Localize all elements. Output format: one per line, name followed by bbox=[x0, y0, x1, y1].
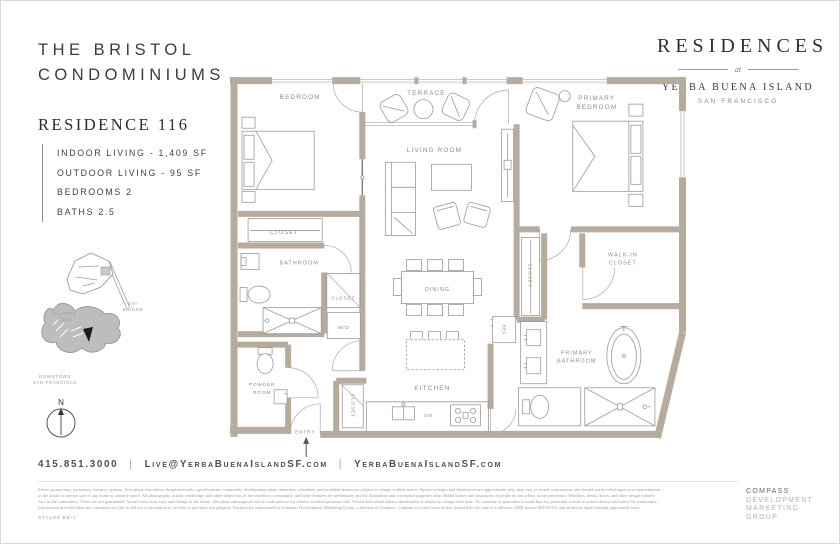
bristol-site-marker bbox=[101, 267, 110, 275]
location-map: BAY BRIDGE CLIPPER COVE DOWNTOWN SAN FRA… bbox=[23, 247, 198, 452]
entry-closet-label: CLOSET bbox=[349, 394, 355, 418]
legal-line-4: Information provided does not constitute… bbox=[38, 505, 746, 511]
refrigerator-label: REF bbox=[502, 324, 507, 334]
map-label-clipper: CLIPPER bbox=[53, 311, 76, 316]
compass-line-4: GROUP bbox=[746, 514, 813, 523]
contact-bar: 415.851.3000 | Live@YerbaBuenaIslandSF.c… bbox=[38, 459, 502, 470]
pocket-door-pull bbox=[361, 176, 364, 179]
legal-disclaimer: Prices, promotions, incentives, features… bbox=[38, 487, 746, 511]
primary-closet-label: CLOSET bbox=[527, 264, 533, 288]
bedroom-closet-label: CLOSET bbox=[270, 230, 298, 236]
primary-bath-label-2: BATHROOM bbox=[557, 359, 596, 365]
residence-name: RESIDENCE 116 bbox=[38, 115, 190, 135]
room-bedroom-closet: CLOSET bbox=[248, 218, 322, 241]
contact-separator-1: | bbox=[129, 459, 133, 470]
room-powder: POWDER ROOM bbox=[249, 348, 287, 404]
map-label-downtown: DOWNTOWN bbox=[39, 374, 71, 379]
map-label-bay: BAY bbox=[128, 301, 138, 306]
map-label-bridge: BRIDGE bbox=[123, 307, 144, 312]
floor-plan: BEDROOM CLOSET BATHROOM CLOSET bbox=[226, 67, 689, 460]
entry-area: ENTRY CLOSET bbox=[295, 385, 363, 457]
bathroom-label: BATHROOM bbox=[279, 261, 318, 267]
map-label-cove: COVE bbox=[58, 317, 73, 322]
contact-separator-2: | bbox=[339, 459, 343, 470]
badge-at: at bbox=[735, 65, 741, 74]
room-walk-in-closet: WALK-IN CLOSET bbox=[608, 252, 638, 266]
room-bathroom: BATHROOM bbox=[240, 253, 321, 333]
contact-phone: 415.851.3000 bbox=[38, 459, 118, 470]
compass-line-1: COMPASS bbox=[746, 488, 813, 497]
style-number: STYLE# BB-1 bbox=[38, 515, 77, 520]
spec-bedrooms: BEDROOMS 2 bbox=[57, 183, 208, 203]
brand-title: THE BRISTOL CONDOMINIUMS bbox=[38, 38, 225, 88]
north-label: N bbox=[58, 398, 64, 407]
bedroom-label: BEDROOM bbox=[280, 94, 321, 101]
spec-baths: BATHS 2.5 bbox=[57, 203, 208, 223]
map-label-sf: SAN FRANCISCO bbox=[33, 380, 77, 385]
walk-in-label-2: CLOSET bbox=[609, 261, 637, 267]
compass-line-3: MARKETING bbox=[746, 505, 813, 514]
entry-arrow-icon bbox=[303, 437, 309, 457]
contact-email: Live@YerbaBuenaIslandSF.com bbox=[145, 459, 328, 470]
room-bedroom: BEDROOM bbox=[242, 94, 321, 202]
kitchen-label: KITCHEN bbox=[414, 385, 450, 392]
dishwasher-label: DW bbox=[424, 413, 433, 418]
brand-title-line1: THE BRISTOL bbox=[38, 38, 225, 63]
washer-dryer-label: W/D bbox=[338, 325, 350, 331]
footer-divider bbox=[38, 481, 738, 482]
contact-website: YerbaBuenaIslandSF.com bbox=[354, 459, 502, 470]
compass-brand-block: COMPASS DEVELOPMENT MARKETING GROUP bbox=[746, 488, 813, 522]
residence-specs: INDOOR LIVING - 1,409 SF OUTDOOR LIVING … bbox=[42, 144, 208, 222]
room-primary-closet: CLOSET bbox=[522, 237, 540, 315]
north-arrow-icon: N bbox=[47, 398, 75, 437]
terrace-label: TERRACE bbox=[407, 90, 446, 97]
room-primary-bath: PRIMARY BATHROOM bbox=[519, 322, 655, 426]
spec-outdoor-living: OUTDOOR LIVING - 95 SF bbox=[57, 164, 208, 184]
washer-dryer: W/D bbox=[327, 313, 360, 339]
brand-title-line2: CONDOMINIUMS bbox=[38, 63, 225, 88]
primary-bedroom-label-1: PRIMARY bbox=[578, 95, 615, 102]
hall-closet-label: CLOSET bbox=[331, 296, 355, 302]
dining-label: DINING bbox=[425, 287, 450, 293]
powder-label-1: POWDER bbox=[249, 382, 275, 388]
room-primary-bedroom: PRIMARY BEDROOM bbox=[525, 86, 643, 206]
badge-rule-right bbox=[748, 69, 798, 70]
powder-label-2: ROOM bbox=[253, 390, 271, 396]
spec-indoor-living: INDOOR LIVING - 1,409 SF bbox=[57, 144, 208, 164]
legal-line-3: vary in the community. Views are not gua… bbox=[38, 499, 746, 505]
primary-bath-label-1: PRIMARY bbox=[561, 351, 593, 357]
badge-title: RESIDENCES bbox=[657, 35, 819, 58]
entry-label: ENTRY bbox=[295, 429, 315, 435]
terrace-area: TERRACE bbox=[378, 90, 471, 124]
flyer-page: THE BRISTOL CONDOMINIUMS RESIDENCE 116 I… bbox=[0, 0, 840, 544]
compass-line-2: DEVELOPMENT bbox=[746, 497, 813, 506]
room-living: LIVING ROOM bbox=[385, 129, 513, 235]
primary-bedroom-label-2: BEDROOM bbox=[576, 104, 617, 111]
walk-in-label-1: WALK-IN bbox=[608, 252, 638, 258]
room-dining: DINING bbox=[393, 259, 481, 315]
legal-line-2: of the actual or precise size of any hom… bbox=[38, 493, 746, 499]
living-room-label: LIVING ROOM bbox=[407, 147, 462, 154]
